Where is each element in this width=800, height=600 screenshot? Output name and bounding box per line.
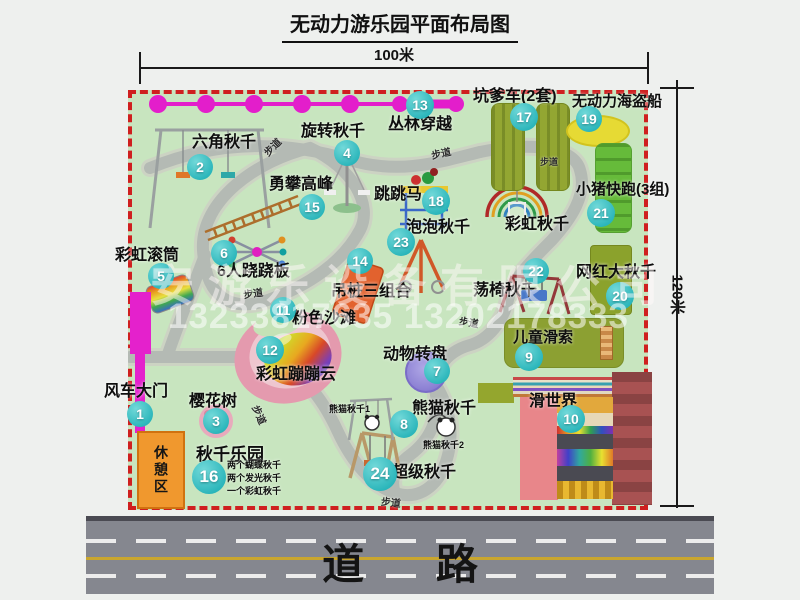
slide-world-left-column xyxy=(520,397,558,500)
marker-19: 19 xyxy=(576,106,602,132)
dimension-height-label: 120米 xyxy=(668,274,689,314)
label-panda-swing: 熊猫秋千 xyxy=(412,400,476,418)
marker-7: 7 xyxy=(424,358,450,384)
marker-16: 16 xyxy=(192,460,226,494)
label-rotating-swing: 旋转秋千 xyxy=(301,123,365,141)
marker-8: 8 xyxy=(390,410,418,438)
dimension-width-line xyxy=(140,67,648,69)
road: 道 路 xyxy=(86,516,714,594)
slide-world-band-dark-2 xyxy=(557,466,613,481)
swing-park-note-3: 一个彩虹秋千 xyxy=(227,487,281,497)
label-rainbow-cloud: 彩虹蹦蹦云 xyxy=(256,366,336,384)
slide-world-band-yellow xyxy=(557,481,613,499)
label-seesaw: 6人跷跷板 xyxy=(217,263,290,281)
label-hanging-pile: 吊桩三组合 xyxy=(331,283,411,301)
label-bubble-swing: 泡泡秋千 xyxy=(406,219,470,237)
label-hexagon-swing: 六角秋千 xyxy=(192,134,256,152)
screenshot-root: 无动力游乐园平面布局图 100米 120米 xyxy=(0,0,800,600)
label-piggy-run: 小猪快跑(3组) xyxy=(576,182,669,199)
page-title-text: 无动力游乐园平面布局图 xyxy=(282,8,518,43)
swing-park-note-1: 两个蝴蝶秋千 xyxy=(227,461,281,471)
dimension-height-tick-bottom xyxy=(660,505,694,507)
marker-9: 9 xyxy=(515,343,543,371)
slide-world-deck xyxy=(478,383,514,403)
label-big-swing: 网红大秋千 xyxy=(576,264,656,282)
path-label-4: 步道 xyxy=(242,284,264,302)
label-jumping-horse: 跳跳马 xyxy=(374,186,422,204)
label-panda-swing-1: 熊猫秋千1 xyxy=(329,405,370,415)
dimension-width-tick-left xyxy=(139,52,141,84)
path-label-3: 步道 xyxy=(540,155,558,168)
slide-world-band-rainbow xyxy=(557,449,613,466)
rest-area-label: 休憩区 xyxy=(151,445,171,496)
marker-22: 22 xyxy=(523,258,549,284)
label-rainbow-drum: 彩虹滚筒 xyxy=(115,247,179,265)
marker-2: 2 xyxy=(187,154,213,180)
slide-world-band-dark-1 xyxy=(557,434,613,449)
marker-11: 11 xyxy=(270,297,296,323)
marker-18: 18 xyxy=(422,187,450,215)
marker-1: 1 xyxy=(127,401,153,427)
marker-23: 23 xyxy=(387,228,415,256)
marker-20: 20 xyxy=(606,282,634,310)
label-windmill-gate: 风车大门 xyxy=(104,383,168,401)
dimension-width-label: 100米 xyxy=(140,44,648,65)
marker-14: 14 xyxy=(347,248,373,274)
pit-car-track-2 xyxy=(536,103,570,191)
label-panda-swing-2: 熊猫秋千2 xyxy=(423,441,464,451)
label-chair-swing: 荡椅秋千 xyxy=(473,282,537,300)
marker-24: 24 xyxy=(363,457,397,491)
swing-park-note-2: 两个发光秋千 xyxy=(227,474,281,484)
path-label-7: 步道 xyxy=(458,312,480,330)
zipline-ladder xyxy=(600,326,613,360)
marker-10: 10 xyxy=(557,405,585,433)
marker-15: 15 xyxy=(299,194,325,220)
label-climbing-peak: 勇攀高峰 xyxy=(269,176,333,194)
dimension-height-line xyxy=(676,80,678,508)
marker-4: 4 xyxy=(334,140,360,166)
marker-13: 13 xyxy=(406,91,434,119)
label-super-swing: 超级秋千 xyxy=(392,464,456,482)
dimension-height-tick-top xyxy=(660,87,694,89)
marker-5: 5 xyxy=(148,263,174,289)
windmill-gate-shape xyxy=(130,292,151,354)
label-rainbow-swing: 彩虹秋千 xyxy=(505,216,569,234)
slide-world-right-column xyxy=(612,372,652,505)
dimension-width-tick-right xyxy=(647,52,649,84)
marker-17: 17 xyxy=(510,103,538,131)
page-title: 无动力游乐园平面布局图 xyxy=(0,8,800,43)
road-label: 道 路 xyxy=(292,531,508,592)
marker-12: 12 xyxy=(256,336,284,364)
label-pit-car: 坑爹车(2套) xyxy=(473,88,557,106)
marker-3: 3 xyxy=(203,408,229,434)
marker-21: 21 xyxy=(587,199,615,227)
path-label-6: 步道 xyxy=(380,493,401,510)
marker-6: 6 xyxy=(211,240,237,266)
rest-area: 休憩区 xyxy=(137,431,185,509)
label-pink-beach: 粉色沙滩 xyxy=(292,310,356,328)
